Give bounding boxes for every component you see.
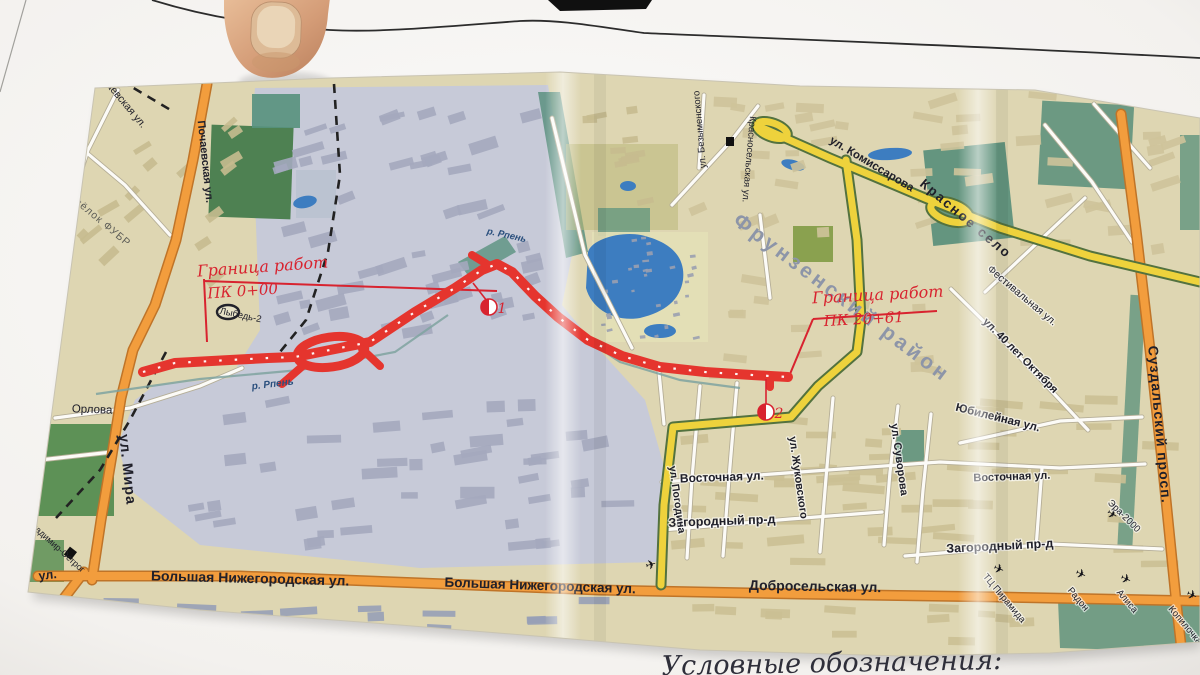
marker-2-circle xyxy=(758,404,774,420)
street-label: Добросельская ул. xyxy=(749,577,882,595)
photo-of-route-map: 1 2 ✈ ✈ ✈ ✈ ✈ ✈ Почаевская ул. Почаевска… xyxy=(0,0,1200,675)
marker-1-number: 1 xyxy=(498,301,507,317)
printed-city-map: 1 2 ✈ ✈ ✈ ✈ ✈ ✈ Почаевская ул. Почаевска… xyxy=(0,60,1200,675)
marker-2-number: 2 xyxy=(774,406,784,422)
street-label: ул. xyxy=(38,567,58,583)
marker-1-circle xyxy=(481,299,497,315)
street-label: Орлова xyxy=(72,403,114,416)
street-label: Восточная ул. xyxy=(680,469,764,486)
legend-caption: Условные обозначения: xyxy=(661,645,1002,675)
park-poi-icon xyxy=(726,137,734,146)
